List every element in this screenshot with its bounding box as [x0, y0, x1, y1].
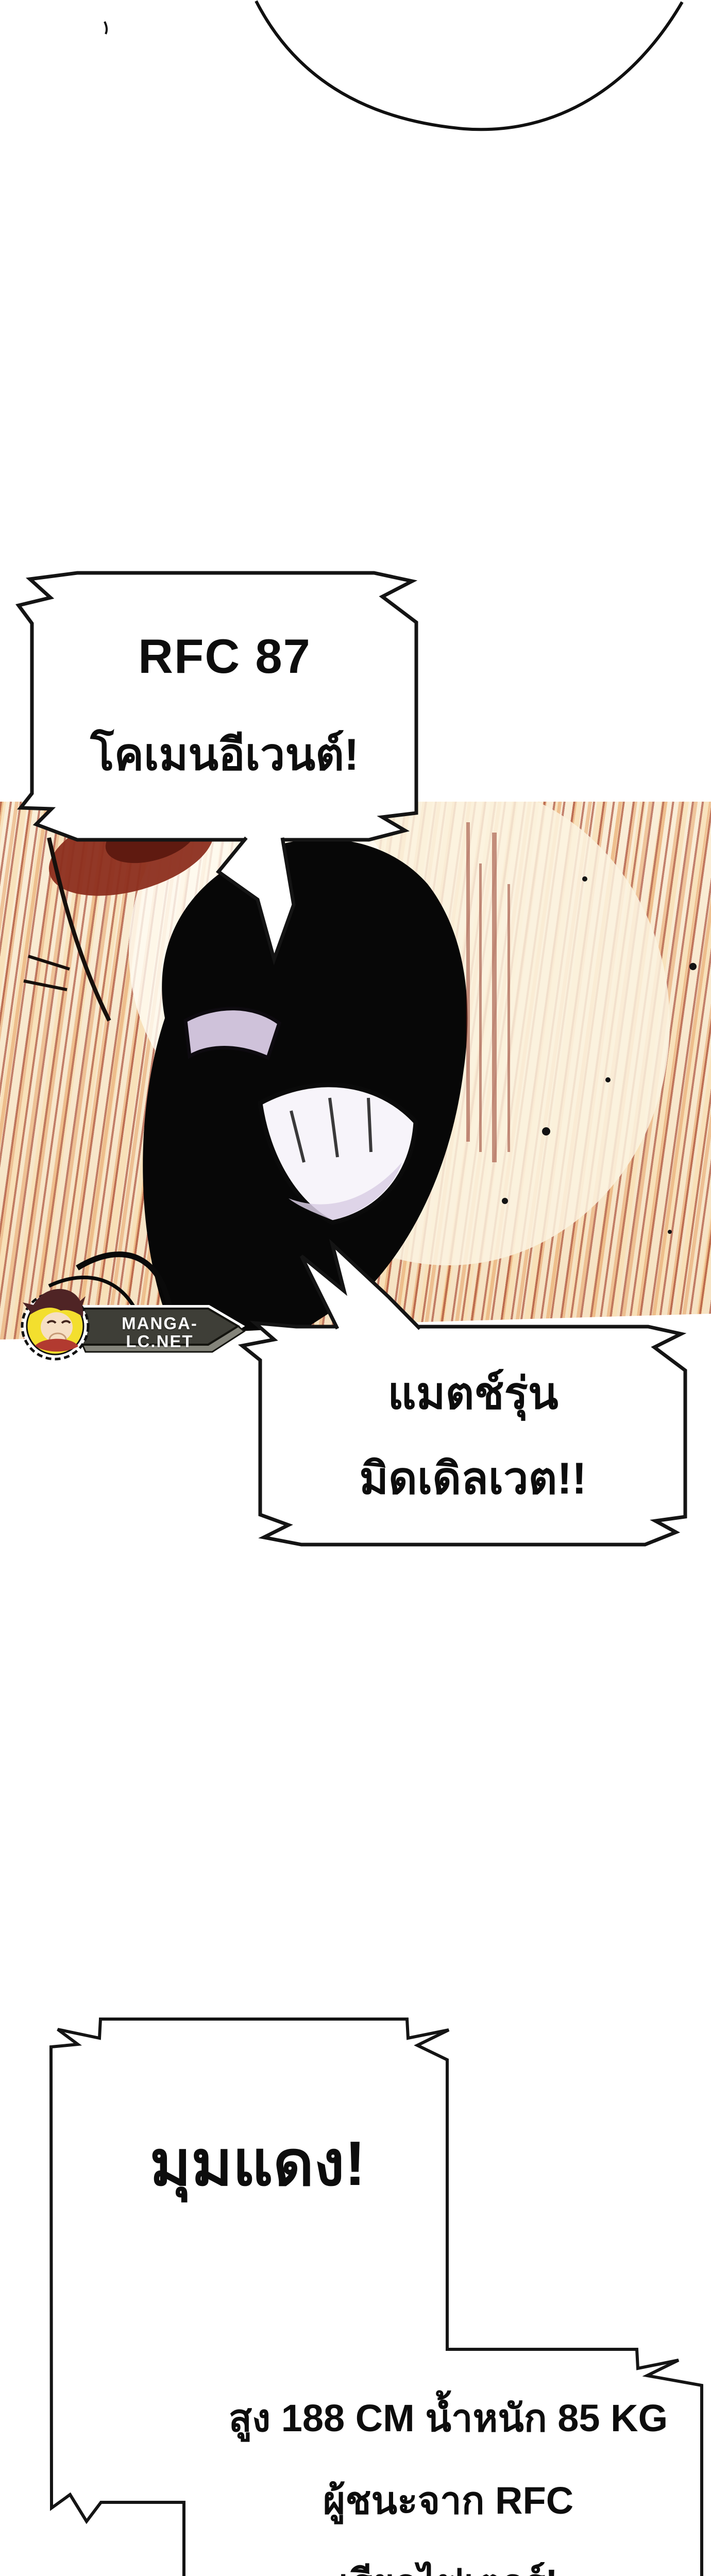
bubble-event-line1: RFC 87 [32, 631, 417, 682]
lightning-tail-icon [218, 838, 294, 959]
bubble-stats-line3: เรียลไฟเตอร์! [196, 2563, 701, 2576]
bubble-stats-line1: สูง 188 CM น้ำหนัก 85 KG [196, 2398, 701, 2438]
watermark-label: MANGA-LC.NET [91, 1315, 229, 1350]
manga-page: RFC 87 โคเมนอีเวนต์! แมตช์รุ่น มิดเดิลเว… [0, 0, 711, 2576]
bubble-match-line2: มิดเดิลเวต!! [260, 1455, 686, 1502]
bubble-event-line2: โคเมนอีเวนต์! [32, 732, 417, 778]
chibi-avatar-icon [22, 1289, 88, 1359]
bubble-match-line1: แมตช์รุ่น [260, 1370, 686, 1417]
bubble-red-corner-title: มุมแดง! [62, 2130, 453, 2196]
lightning-tail-icon [301, 1244, 420, 1329]
bubble-stats-line2: ผู้ชนะจาก RFC [196, 2481, 701, 2521]
previous-bubble-curve [256, 1, 682, 129]
